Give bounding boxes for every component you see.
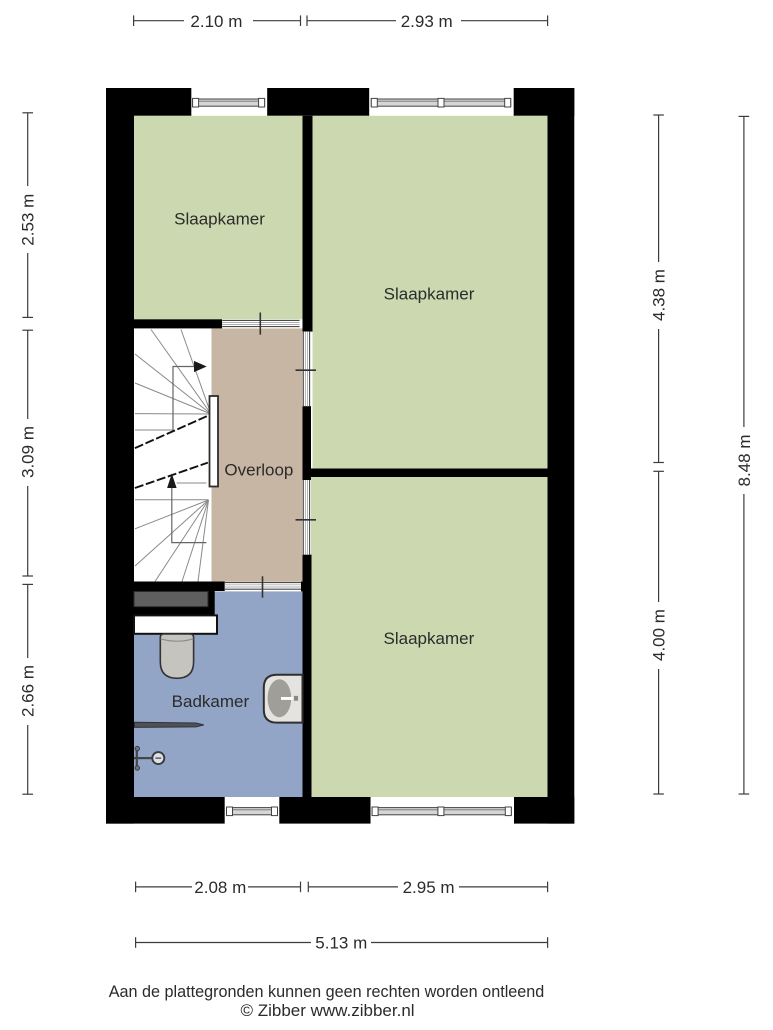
svg-text:2.10 m: 2.10 m (190, 12, 242, 31)
svg-text:Aan de plattegronden kunnen ge: Aan de plattegronden kunnen geen rechten… (109, 983, 545, 1001)
svg-text:8.48 m: 8.48 m (735, 435, 754, 487)
svg-text:Overloop: Overloop (224, 461, 293, 480)
svg-text:2.66 m: 2.66 m (19, 665, 38, 717)
svg-text:Slaapkamer: Slaapkamer (384, 285, 475, 304)
svg-text:Slaapkamer: Slaapkamer (384, 629, 475, 648)
svg-text:2.93 m: 2.93 m (401, 12, 453, 31)
svg-text:2.53 m: 2.53 m (19, 194, 38, 246)
svg-text:5.13 m: 5.13 m (315, 934, 367, 953)
svg-text:2.95 m: 2.95 m (403, 878, 455, 897)
svg-text:Badkamer: Badkamer (172, 692, 250, 711)
svg-text:Slaapkamer: Slaapkamer (174, 210, 265, 229)
svg-text:4.00 m: 4.00 m (650, 609, 669, 661)
svg-text:4.38 m: 4.38 m (650, 269, 669, 321)
svg-text:© Zibber www.zibber.nl: © Zibber www.zibber.nl (240, 1001, 414, 1020)
svg-text:3.09 m: 3.09 m (19, 426, 38, 478)
svg-text:2.08 m: 2.08 m (194, 878, 246, 897)
